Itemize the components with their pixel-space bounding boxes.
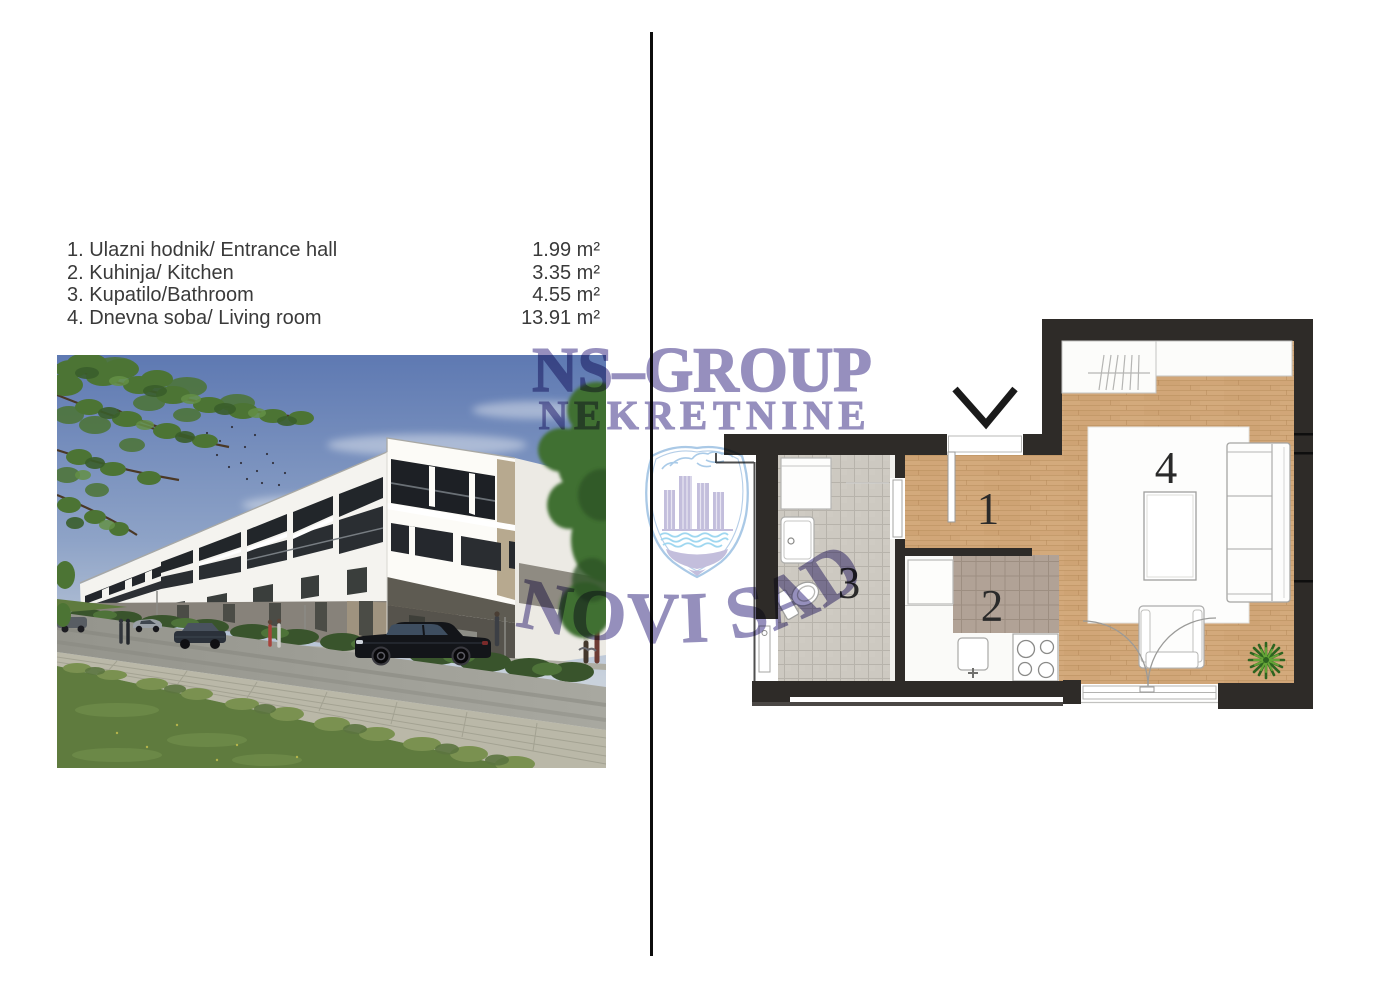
svg-text:4: 4 [1155, 443, 1178, 493]
svg-text:NEKRETNINE: NEKRETNINE [539, 392, 872, 438]
svg-text:2: 2 [981, 581, 1004, 631]
svg-text:1: 1 [977, 484, 1000, 534]
